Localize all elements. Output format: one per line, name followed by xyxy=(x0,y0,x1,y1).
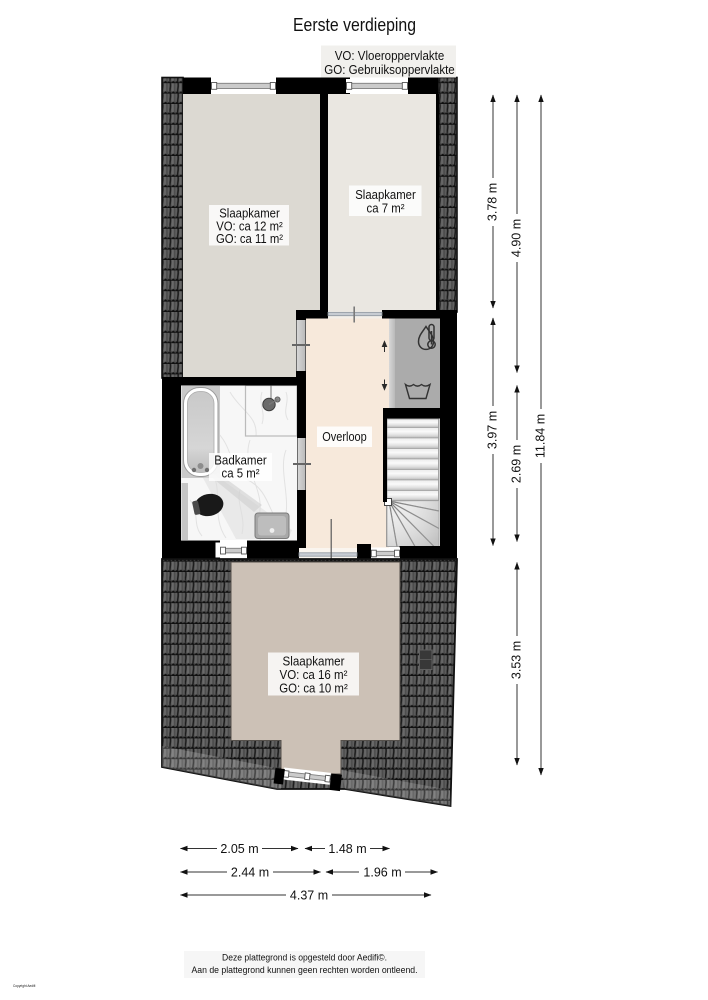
svg-text:GO: ca 10 m²: GO: ca 10 m² xyxy=(279,681,348,696)
svg-text:3.97 m: 3.97 m xyxy=(486,411,500,449)
svg-text:VO: Vloeroppervlakte: VO: Vloeroppervlakte xyxy=(335,48,445,63)
svg-text:ca 7 m²: ca 7 m² xyxy=(367,201,406,216)
svg-text:2.44 m: 2.44 m xyxy=(231,865,269,879)
svg-text:4.90 m: 4.90 m xyxy=(510,219,524,257)
svg-text:11.84 m: 11.84 m xyxy=(534,414,548,458)
svg-text:3.78 m: 3.78 m xyxy=(486,183,500,221)
svg-text:1.48 m: 1.48 m xyxy=(328,842,366,856)
svg-text:Eerste verdieping: Eerste verdieping xyxy=(293,15,416,35)
svg-text:2.69 m: 2.69 m xyxy=(510,445,524,483)
svg-text:GO: Gebruiksoppervlakte: GO: Gebruiksoppervlakte xyxy=(324,62,455,77)
svg-text:GO: ca 11 m²: GO: ca 11 m² xyxy=(216,231,284,246)
svg-text:Deze plattegrond is opgesteld: Deze plattegrond is opgesteld door Aedif… xyxy=(222,953,387,963)
svg-text:ca 5 m²: ca 5 m² xyxy=(222,466,261,481)
svg-text:4.37 m: 4.37 m xyxy=(290,888,328,902)
svg-text:1.96 m: 1.96 m xyxy=(363,865,401,879)
svg-text:3.53 m: 3.53 m xyxy=(510,641,524,679)
svg-text:Copyright Aedifi: Copyright Aedifi xyxy=(13,984,36,988)
svg-text:Aan de plattegrond kunnen geen: Aan de plattegrond kunnen geen rechten w… xyxy=(192,965,418,975)
svg-text:2.05 m: 2.05 m xyxy=(220,842,258,856)
svg-text:Overloop: Overloop xyxy=(322,429,367,444)
